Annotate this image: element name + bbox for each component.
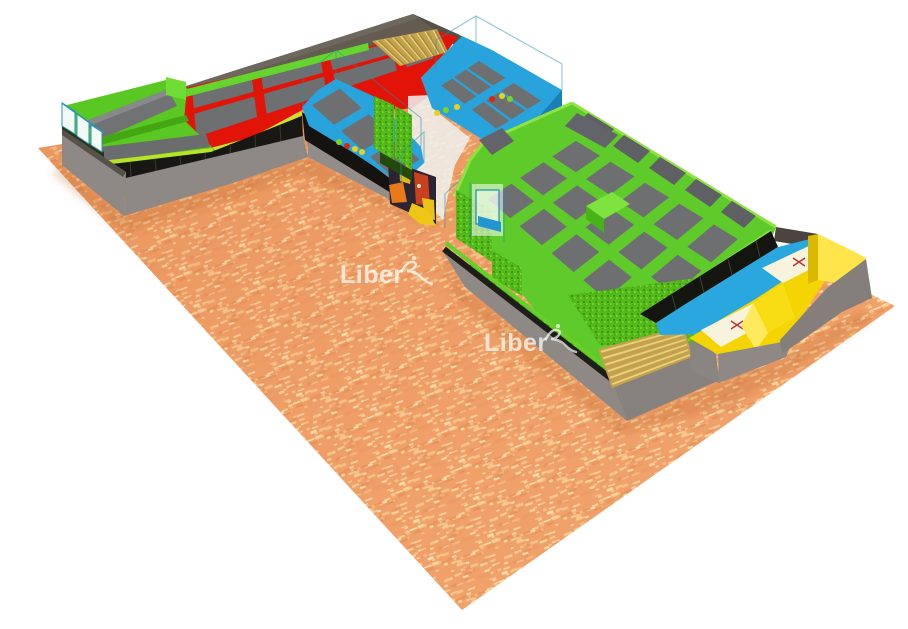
svg-text:Liber: Liber [484,329,548,357]
svg-text:Liber: Liber [340,261,404,289]
